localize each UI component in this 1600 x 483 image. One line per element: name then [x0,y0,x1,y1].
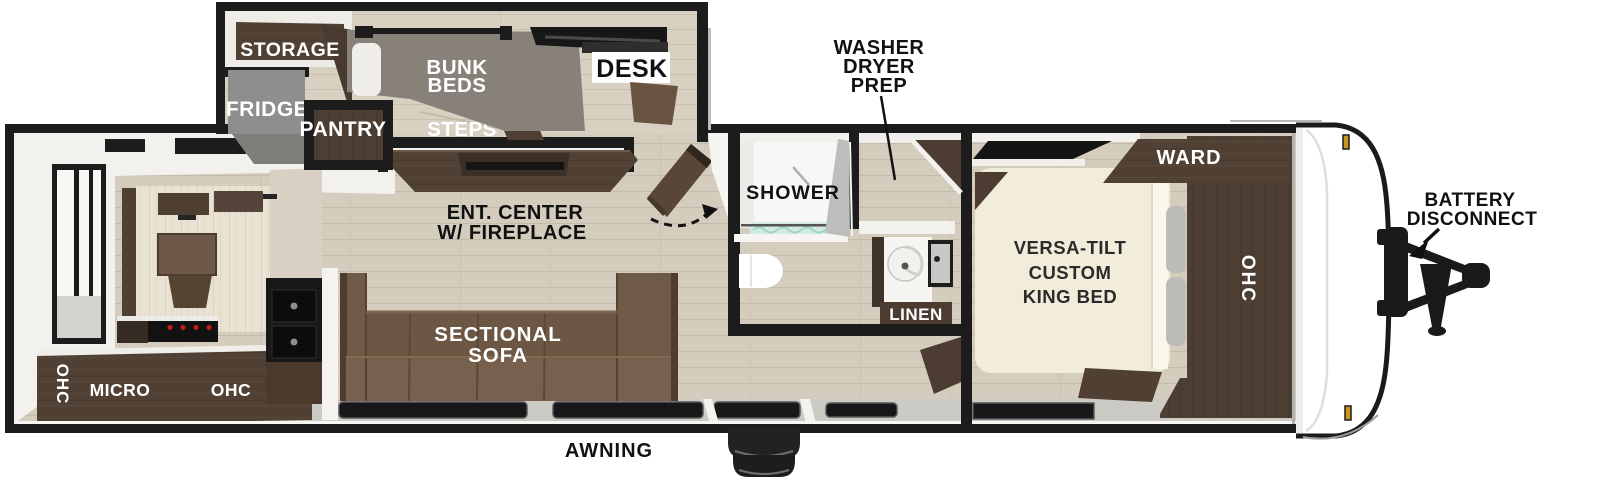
svg-text:WARD: WARD [1156,147,1221,169]
svg-text:DISCONNECT: DISCONNECT [1407,209,1538,230]
svg-text:VERSA-TILT: VERSA-TILT [1014,237,1127,258]
svg-text:ENT. CENTER: ENT. CENTER [447,202,584,224]
svg-text:KING BED: KING BED [1023,286,1117,307]
svg-text:MICRO: MICRO [90,380,151,400]
svg-text:LINEN: LINEN [889,305,943,324]
svg-text:DESK: DESK [596,55,667,83]
svg-text:BEDS: BEDS [428,74,487,97]
svg-text:OHC: OHC [53,364,72,405]
svg-text:BATTERY: BATTERY [1424,190,1515,211]
svg-text:OHC: OHC [211,380,251,400]
svg-text:PREP: PREP [851,75,907,97]
svg-text:PANTRY: PANTRY [300,118,387,141]
svg-text:FRIDGE: FRIDGE [226,98,308,121]
svg-text:CUSTOM: CUSTOM [1029,262,1112,283]
svg-text:STORAGE: STORAGE [240,39,340,61]
svg-text:W/ FIREPLACE: W/ FIREPLACE [437,222,586,244]
svg-text:AWNING: AWNING [565,440,653,462]
svg-text:SOFA: SOFA [468,344,528,367]
svg-text:SHOWER: SHOWER [746,182,840,204]
svg-text:OHC: OHC [1237,255,1258,303]
svg-text:SECTIONAL: SECTIONAL [434,323,561,346]
